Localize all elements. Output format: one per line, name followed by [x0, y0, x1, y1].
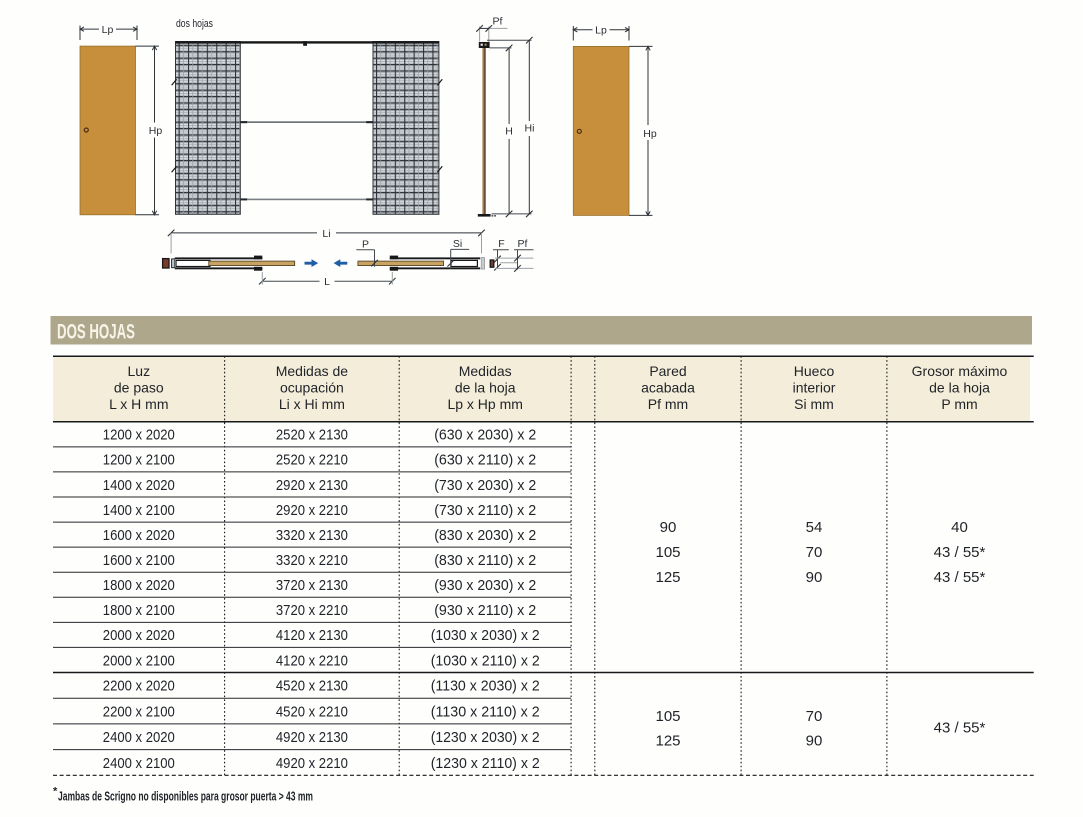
svg-text:70: 70	[806, 708, 823, 725]
svg-text:Hp: Hp	[149, 125, 163, 137]
svg-text:F: F	[498, 238, 504, 250]
svg-text:4920 x 2210: 4920 x 2210	[276, 755, 348, 772]
svg-text:4120 x 2210: 4120 x 2210	[276, 652, 348, 669]
svg-text:Li: Li	[322, 228, 330, 240]
svg-text:H: H	[505, 126, 513, 138]
svg-text:2000 x 2020: 2000 x 2020	[103, 627, 175, 644]
svg-text:Lp: Lp	[595, 24, 607, 36]
svg-text:2000 x 2100: 2000 x 2100	[103, 652, 175, 669]
svg-text:Medidas de: Medidas de	[276, 363, 349, 379]
svg-text:1200 x 2020: 1200 x 2020	[103, 427, 175, 444]
svg-text:Hi: Hi	[525, 123, 535, 135]
svg-text:(930 x 2110) x 2: (930 x 2110) x 2	[434, 602, 536, 619]
svg-text:Lp x Hp mm: Lp x Hp mm	[447, 396, 522, 412]
svg-text:105: 105	[655, 708, 680, 725]
svg-text:de paso: de paso	[114, 380, 164, 396]
svg-text:3320 x 2130: 3320 x 2130	[276, 527, 348, 544]
svg-text:3320 x 2210: 3320 x 2210	[276, 552, 348, 569]
svg-text:Pf: Pf	[493, 16, 503, 28]
svg-text:Hueco: Hueco	[794, 363, 835, 379]
svg-text:(630 x 2110) x 2: (630 x 2110) x 2	[434, 452, 536, 469]
svg-text:1800 x 2020: 1800 x 2020	[103, 577, 175, 594]
svg-text:1800 x 2100: 1800 x 2100	[103, 602, 175, 619]
svg-text:1400 x 2100: 1400 x 2100	[103, 502, 175, 519]
svg-text:54: 54	[806, 519, 823, 536]
svg-text:3720 x 2130: 3720 x 2130	[276, 577, 348, 594]
svg-text:(1230 x 2030) x 2: (1230 x 2030) x 2	[431, 729, 540, 746]
svg-text:(1030 x 2110) x 2: (1030 x 2110) x 2	[431, 652, 540, 669]
svg-text:2920 x 2130: 2920 x 2130	[276, 477, 348, 494]
svg-text:4520 x 2210: 4520 x 2210	[276, 703, 348, 720]
svg-text:43 / 55*: 43 / 55*	[934, 719, 986, 736]
svg-text:Pared: Pared	[649, 363, 686, 379]
svg-text:1400 x 2020: 1400 x 2020	[103, 477, 175, 494]
svg-text:2200 x 2020: 2200 x 2020	[103, 678, 175, 695]
svg-text:40: 40	[951, 519, 968, 536]
svg-text:125: 125	[655, 733, 680, 750]
svg-text:Lp: Lp	[102, 24, 114, 36]
svg-text:(1230 x 2110) x 2: (1230 x 2110) x 2	[431, 755, 540, 772]
svg-text:acabada: acabada	[641, 380, 695, 396]
svg-text:Hp: Hp	[643, 128, 657, 140]
svg-text:DOS HOJAS: DOS HOJAS	[57, 321, 135, 344]
svg-text:1200 x 2100: 1200 x 2100	[103, 452, 175, 469]
svg-text:Pf: Pf	[518, 238, 528, 250]
svg-text:43 / 55*: 43 / 55*	[934, 544, 986, 561]
svg-text:P mm: P mm	[941, 396, 977, 412]
svg-text:125: 125	[655, 569, 680, 586]
svg-text:4120 x 2130: 4120 x 2130	[276, 627, 348, 644]
svg-text:(730 x 2110) x 2: (730 x 2110) x 2	[434, 502, 536, 519]
svg-text:(930 x 2030) x 2: (930 x 2030) x 2	[434, 577, 536, 594]
svg-text:2520 x 2210: 2520 x 2210	[276, 452, 348, 469]
svg-text:P: P	[362, 238, 369, 250]
svg-text:1600 x 2020: 1600 x 2020	[103, 527, 175, 544]
svg-text:L: L	[324, 276, 330, 288]
svg-text:Li x Hi mm: Li x Hi mm	[279, 396, 345, 412]
svg-text:90: 90	[660, 519, 677, 536]
svg-text:(1130 x 2030) x 2: (1130 x 2030) x 2	[431, 678, 540, 695]
svg-text:(730 x 2030) x 2: (730 x 2030) x 2	[434, 477, 536, 494]
svg-text:Jambas de Scrigno no disponibl: Jambas de Scrigno no disponibles para gr…	[58, 790, 313, 804]
svg-text:43 / 55*: 43 / 55*	[934, 569, 986, 586]
svg-text:Pf mm: Pf mm	[648, 396, 688, 412]
svg-text:(630 x 2030) x 2: (630 x 2030) x 2	[434, 427, 536, 444]
svg-text:ocupación: ocupación	[280, 380, 344, 396]
svg-text:2400 x 2100: 2400 x 2100	[103, 755, 175, 772]
svg-text:105: 105	[655, 544, 680, 561]
svg-text:4920 x 2130: 4920 x 2130	[276, 729, 348, 746]
svg-text:Medidas: Medidas	[459, 363, 512, 379]
svg-text:Si mm: Si mm	[794, 396, 834, 412]
svg-text:Si: Si	[453, 238, 462, 250]
svg-text:de la hoja: de la hoja	[929, 380, 990, 396]
svg-text:90: 90	[806, 733, 823, 750]
svg-text:2200 x 2100: 2200 x 2100	[103, 703, 175, 720]
svg-text:Grosor máximo: Grosor máximo	[912, 363, 1008, 379]
svg-text:Luz: Luz	[128, 363, 151, 379]
svg-text:(830 x 2110) x 2: (830 x 2110) x 2	[434, 552, 536, 569]
svg-text:2400 x 2020: 2400 x 2020	[103, 729, 175, 746]
svg-text:dos hojas: dos hojas	[176, 18, 213, 30]
svg-text:4520 x 2130: 4520 x 2130	[276, 678, 348, 695]
svg-text:2920 x 2210: 2920 x 2210	[276, 502, 348, 519]
svg-text:de la hoja: de la hoja	[455, 380, 516, 396]
svg-text:70: 70	[806, 544, 823, 561]
svg-text:L x H mm: L x H mm	[109, 396, 168, 412]
svg-text:1600 x 2100: 1600 x 2100	[103, 552, 175, 569]
svg-text:90: 90	[806, 569, 823, 586]
svg-text:interior: interior	[793, 380, 836, 396]
svg-text:(830 x 2030) x 2: (830 x 2030) x 2	[434, 527, 536, 544]
svg-text:3720 x 2210: 3720 x 2210	[276, 602, 348, 619]
svg-text:2520 x 2130: 2520 x 2130	[276, 427, 348, 444]
svg-text:(1030 x 2030) x 2: (1030 x 2030) x 2	[431, 627, 540, 644]
svg-text:(1130 x 2110) x 2: (1130 x 2110) x 2	[431, 703, 540, 720]
